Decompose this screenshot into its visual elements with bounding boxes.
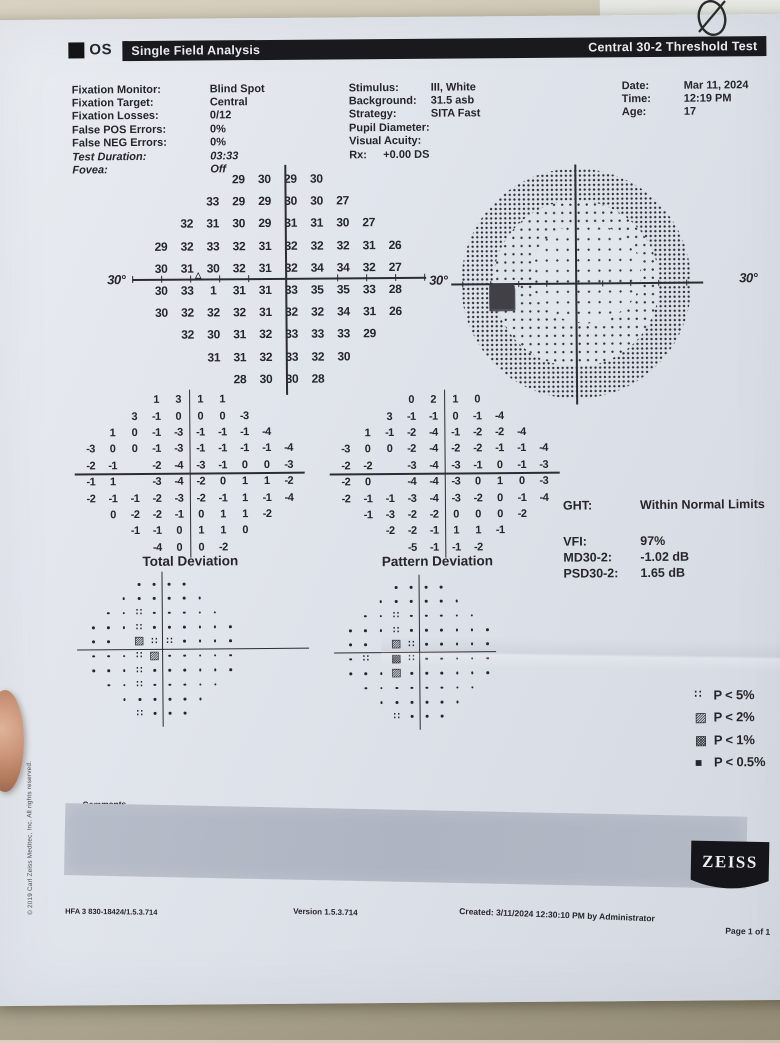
- value-cell: 34: [330, 300, 356, 322]
- value-cell: 31: [356, 300, 382, 322]
- total-deviation-plot: 13113-1000-310-1-3-1-1-1-4-300-1-3-1-1-1…: [79, 391, 300, 559]
- value-cell: -1: [102, 490, 124, 507]
- prob-cell: [208, 706, 223, 721]
- prob-cell: [420, 709, 435, 724]
- value-cell: 33: [174, 279, 200, 301]
- prob-cell: [388, 594, 403, 609]
- prob-cell: [419, 608, 434, 623]
- prob-cell: [193, 706, 208, 721]
- prob-cell: [449, 594, 464, 609]
- value-cell: -1: [233, 440, 255, 457]
- value-cell: -1: [357, 507, 379, 524]
- prob-cell: [464, 608, 479, 623]
- value-cell: 27: [329, 189, 355, 211]
- value-cell: -1: [357, 490, 379, 507]
- param-value: Central: [210, 96, 248, 108]
- value-cell: [382, 211, 408, 233]
- prob-cell: [117, 707, 132, 722]
- threshold-axis-label-right: 30°: [429, 273, 447, 288]
- value-cell: 33: [279, 345, 305, 367]
- value-cell: 33: [278, 279, 304, 301]
- zeiss-logo-text: ZEISS: [690, 852, 770, 873]
- report-content: OS Single Field Analysis Central 30-2 Th…: [0, 0, 780, 1043]
- value-cell: 1: [102, 474, 124, 491]
- legend-row: ▨ P < 2%: [695, 706, 765, 729]
- prob-cell: [223, 663, 238, 678]
- value-cell: -1: [212, 457, 234, 474]
- copyright-text: © 2019 Carl Zeiss Meditec, Inc. All righ…: [26, 761, 34, 915]
- prob-cell: [222, 576, 237, 591]
- value-cell: 32: [174, 213, 200, 235]
- value-cell: 32: [175, 324, 201, 346]
- value-cell: [123, 392, 145, 409]
- prob-cell: ∷: [132, 649, 147, 664]
- value-cell: [278, 522, 300, 539]
- prob-cell: [464, 622, 479, 637]
- value-cell: -2: [80, 491, 102, 508]
- value-cell: -3: [533, 473, 555, 490]
- param-row: Background:31.5 asb: [349, 94, 481, 108]
- value-cell: -3: [146, 474, 168, 491]
- value-cell: -2: [400, 441, 422, 458]
- prob-cell: [192, 605, 207, 620]
- value-cell: 31: [252, 257, 278, 279]
- value-cell: 33: [200, 235, 226, 257]
- value-cell: -2: [357, 458, 379, 475]
- prob-cell: [116, 635, 131, 650]
- md-value: -1.02 dB: [640, 550, 689, 564]
- value-cell: 32: [253, 345, 279, 367]
- value-cell: 31: [226, 279, 252, 301]
- value-cell: [329, 167, 355, 189]
- value-cell: 32: [330, 234, 356, 256]
- value-cell: 0: [489, 506, 511, 523]
- value-cell: -2: [80, 458, 102, 475]
- value-cell: 35: [330, 278, 356, 300]
- value-cell: -1: [255, 440, 277, 457]
- value-cell: [356, 408, 378, 425]
- photo-of-report: { "header": { "eye_label": "OS", "left_t…: [0, 0, 780, 1040]
- value-cell: -3: [445, 490, 467, 507]
- value-cell: -1: [189, 441, 211, 458]
- psd-row: PSD30-2: 1.65 dB: [563, 566, 685, 581]
- prob-cell: [344, 710, 359, 725]
- prob-cell: [207, 605, 222, 620]
- prob-cell: [146, 577, 161, 592]
- prob-cell: [162, 620, 177, 635]
- md-label: MD30-2:: [563, 550, 640, 565]
- param-row: Pupil Diameter:: [349, 120, 481, 134]
- value-cell: -4: [423, 490, 445, 507]
- vfi-value: 97%: [640, 534, 665, 548]
- value-cell: 32: [253, 323, 279, 345]
- param-value: 17: [684, 106, 696, 118]
- value-cell: -2: [278, 473, 300, 490]
- value-cell: [331, 367, 357, 389]
- value-cell: -3: [445, 473, 467, 490]
- prob-cell: [177, 649, 192, 664]
- param-label: Date:: [622, 79, 684, 91]
- prob-cell: [192, 591, 207, 606]
- value-cell: 1: [200, 279, 226, 301]
- prob-cell: [419, 695, 434, 710]
- value-cell: 0: [400, 392, 422, 409]
- param-label: Time:: [622, 93, 684, 105]
- value-cell: -2: [124, 507, 146, 524]
- value-cell: 30: [251, 168, 277, 190]
- prob-cell: [404, 666, 419, 681]
- prob-cell: [434, 680, 449, 695]
- prob-cell: [223, 648, 238, 663]
- prob-cell: [178, 706, 193, 721]
- value-cell: [79, 392, 101, 409]
- stimulus-parameters: Stimulus:III, White Background:31.5 asb …: [349, 80, 481, 161]
- value-cell: 32: [226, 301, 252, 323]
- prob-cell: [146, 606, 161, 621]
- value-cell: 0: [102, 507, 124, 524]
- value-cell: -2: [146, 490, 168, 507]
- value-cell: -1: [379, 490, 401, 507]
- value-cell: 28: [305, 367, 331, 389]
- prob-cell: [434, 580, 449, 595]
- psd-value: 1.65 dB: [640, 566, 685, 580]
- value-cell: [147, 169, 173, 191]
- prob-cell: [102, 692, 117, 707]
- prob-cell: [222, 591, 237, 606]
- prob-cell: [116, 620, 131, 635]
- value-cell: -2: [423, 506, 445, 523]
- value-cell: 1: [189, 391, 211, 408]
- value-cell: 0: [211, 408, 233, 425]
- prob-cell: [464, 579, 479, 594]
- param-row: Time:12:19 PM: [622, 92, 749, 106]
- value-cell: 32: [226, 235, 252, 257]
- value-cell: 34: [304, 256, 330, 278]
- prob-cell: [358, 638, 373, 653]
- pattern-deviation-title: Pattern Deviation: [327, 553, 547, 570]
- value-cell: [233, 391, 255, 408]
- prob-cell: [207, 620, 222, 635]
- value-cell: 34: [330, 256, 356, 278]
- value-cell: -2: [335, 491, 357, 508]
- prob-cell: ∷: [131, 620, 146, 635]
- prob-cell: ∷: [132, 663, 147, 678]
- pattern-deviation-plot: 02103-1-10-1-41-1-2-4-1-2-2-4-300-2-4-2-…: [334, 391, 555, 559]
- value-cell: 0: [489, 489, 511, 506]
- value-cell: -4: [168, 474, 190, 491]
- prob-cell: [162, 692, 177, 707]
- prob-cell: [359, 710, 374, 725]
- value-cell: -1: [423, 523, 445, 540]
- value-cell: 1: [445, 523, 467, 540]
- value-cell: 32: [304, 301, 330, 323]
- prob-cell: [86, 649, 101, 664]
- value-cell: -1: [80, 474, 102, 491]
- value-cell: -1: [146, 523, 168, 540]
- value-cell: 0: [234, 457, 256, 474]
- value-cell: -2: [190, 490, 212, 507]
- value-cell: 0: [189, 408, 211, 425]
- prob-cell: [86, 606, 101, 621]
- grayscale-light-stipple: [531, 223, 642, 324]
- value-cell: 30: [330, 212, 356, 234]
- value-cell: [379, 457, 401, 474]
- prob-cell: [161, 577, 176, 592]
- value-cell: -4: [277, 440, 299, 457]
- handwritten-circle-slash-mark: [688, 0, 736, 42]
- prob-cell: ∷: [358, 652, 373, 667]
- value-cell: -1: [510, 440, 532, 457]
- value-cell: -1: [124, 490, 146, 507]
- prob-cell: [403, 594, 418, 609]
- value-cell: 30: [253, 368, 279, 390]
- vfi-label: VFI:: [563, 534, 640, 549]
- value-cell: -3: [79, 441, 101, 458]
- prob-cell: [374, 710, 389, 725]
- value-cell: -3: [379, 507, 401, 524]
- value-cell: -4: [422, 424, 444, 441]
- vfi-row: VFI: 97%: [563, 534, 665, 549]
- prob-cell: [162, 677, 177, 692]
- value-cell: -4: [255, 424, 277, 441]
- prob-cell: [162, 591, 177, 606]
- value-cell: [334, 392, 356, 409]
- param-label: Age:: [622, 106, 684, 118]
- prob-cell: [358, 609, 373, 624]
- param-label: Test Duration:: [72, 150, 210, 163]
- prob-cell: [374, 695, 389, 710]
- param-value: 12:19 PM: [684, 92, 732, 104]
- value-cell: -2: [335, 458, 357, 475]
- prob-cell: [117, 678, 132, 693]
- value-cell: -2: [401, 506, 423, 523]
- prob-cell: [101, 592, 116, 607]
- prob-cell: [101, 606, 116, 621]
- value-cell: [510, 391, 532, 408]
- value-cell: [510, 407, 532, 424]
- value-cell: 1: [145, 392, 167, 409]
- value-cell: 26: [382, 300, 408, 322]
- prob-cell: [177, 663, 192, 678]
- blind-spot-marker-icon: △: [195, 270, 201, 279]
- prob-cell: [207, 576, 222, 591]
- prob-cell: [177, 577, 192, 592]
- param-label: Visual Acuity:: [349, 135, 431, 148]
- value-cell: [277, 424, 299, 441]
- eye-label: OS: [89, 41, 112, 58]
- value-cell: 0: [234, 522, 256, 539]
- prob-cell: [177, 677, 192, 692]
- value-cell: 32: [304, 234, 330, 256]
- p05-symbol-icon: ■: [695, 756, 714, 768]
- value-cell: 1: [489, 473, 511, 490]
- value-cell: 30: [303, 167, 329, 189]
- value-cell: -1: [233, 424, 255, 441]
- value-cell: 32: [356, 256, 382, 278]
- legend-label: P < 2%: [714, 709, 755, 724]
- ght-row: GHT: Within Normal Limits: [563, 497, 765, 513]
- value-cell: -1: [400, 408, 422, 425]
- value-cell: [383, 367, 409, 389]
- value-cell: [278, 505, 300, 522]
- value-cell: [255, 391, 277, 408]
- value-cell: 0: [101, 441, 123, 458]
- prob-cell: [223, 691, 238, 706]
- value-cell: 29: [225, 168, 251, 190]
- prob-cell: [193, 663, 208, 678]
- prob-cell: [101, 577, 116, 592]
- prob-cell: ∷: [162, 634, 177, 649]
- value-cell: -4: [423, 457, 445, 474]
- prob-cell: [388, 580, 403, 595]
- prob-cell: [146, 591, 161, 606]
- value-cell: -2: [256, 506, 278, 523]
- value-cell: 1: [101, 425, 123, 442]
- value-cell: [378, 392, 400, 409]
- prob-cell: [434, 623, 449, 638]
- value-cell: -2: [444, 441, 466, 458]
- value-cell: 0: [123, 441, 145, 458]
- value-cell: -1: [102, 458, 124, 475]
- value-cell: 1: [356, 425, 378, 442]
- prob-cell: [208, 648, 223, 663]
- prob-cell: [419, 594, 434, 609]
- value-cell: -2: [511, 506, 533, 523]
- value-cell: [255, 407, 277, 424]
- value-cell: [80, 507, 102, 524]
- prob-cell: [479, 579, 494, 594]
- prob-cell: [373, 580, 388, 595]
- total-deviation-probability-map: ∷∷▨∷∷∷▨∷∷∷: [86, 576, 239, 723]
- prob-cell: [465, 680, 480, 695]
- value-cell: 29: [148, 235, 174, 257]
- prob-cell: [147, 706, 162, 721]
- prob-cell: [480, 709, 495, 724]
- prob-cell: [374, 681, 389, 696]
- value-cell: [124, 457, 146, 474]
- p5-symbol-icon: ∷: [694, 689, 713, 700]
- value-cell: [201, 368, 227, 390]
- prob-cell: [450, 695, 465, 710]
- value-cell: [79, 409, 101, 426]
- value-cell: -2: [379, 523, 401, 540]
- value-cell: -4: [278, 489, 300, 506]
- value-cell: -3: [334, 441, 356, 458]
- value-cell: -1: [212, 490, 234, 507]
- value-cell: 31: [356, 234, 382, 256]
- value-cell: 32: [174, 302, 200, 324]
- value-cell: [80, 523, 102, 540]
- value-cell: [79, 425, 101, 442]
- value-cell: -1: [444, 424, 466, 441]
- value-cell: -1: [488, 440, 510, 457]
- prob-cell: [147, 620, 162, 635]
- value-cell: -2: [467, 490, 489, 507]
- prob-cell: [434, 594, 449, 609]
- value-cell: [383, 322, 409, 344]
- prob-cell: [465, 666, 480, 681]
- value-cell: -1: [145, 441, 167, 458]
- prob-cell: ∷: [131, 606, 146, 621]
- legend-row: ∷ P < 5%: [694, 683, 764, 706]
- value-cell: [532, 407, 554, 424]
- value-cell: -4: [401, 474, 423, 491]
- value-cell: -3: [168, 490, 190, 507]
- paper-crease: [381, 636, 780, 672]
- param-label: Rx:: [349, 149, 383, 161]
- prob-cell: [223, 634, 238, 649]
- value-cell: [379, 474, 401, 491]
- prob-cell: [373, 594, 388, 609]
- prob-cell: ∷: [132, 678, 147, 693]
- prob-cell: [480, 680, 495, 695]
- prob-cell: [450, 666, 465, 681]
- value-cell: -4: [488, 407, 510, 424]
- prob-cell: [435, 709, 450, 724]
- value-cell: 29: [251, 190, 277, 212]
- value-cell: 1: [211, 391, 233, 408]
- value-cell: 0: [511, 473, 533, 490]
- report-paper: OS Single Field Analysis Central 30-2 Th…: [0, 14, 780, 1006]
- prob-cell: [404, 695, 419, 710]
- prob-cell: [449, 579, 464, 594]
- prob-cell: [162, 706, 177, 721]
- param-label: Fixation Target:: [72, 96, 210, 109]
- value-cell: -4: [422, 441, 444, 458]
- prob-cell: [465, 709, 480, 724]
- value-cell: 32: [278, 234, 304, 256]
- value-cell: 0: [190, 506, 212, 523]
- value-cell: -2: [401, 523, 423, 540]
- value-cell: -1: [211, 440, 233, 457]
- param-row: Age:17: [622, 105, 749, 119]
- prob-cell: [343, 609, 358, 624]
- created-timestamp-text: Created: 3/11/2024 12:30:10 PM by Admini…: [459, 906, 655, 923]
- prob-cell: [192, 620, 207, 635]
- prob-cell: [86, 678, 101, 693]
- value-cell: [101, 408, 123, 425]
- prob-cell: [208, 663, 223, 678]
- psd-label: PSD30-2:: [563, 566, 640, 581]
- param-row: Visual Acuity:: [349, 134, 481, 148]
- prob-cell: [101, 620, 116, 635]
- value-cell: 0: [467, 506, 489, 523]
- value-cell: 33: [305, 323, 331, 345]
- value-cell: 27: [356, 211, 382, 233]
- prob-cell: [192, 576, 207, 591]
- value-cell: -3: [167, 441, 189, 458]
- value-cell: 33: [279, 323, 305, 345]
- param-value: 0/12: [210, 110, 232, 122]
- prob-cell: [223, 619, 238, 634]
- value-cell: -4: [423, 474, 445, 491]
- value-cell: 0: [168, 523, 190, 540]
- value-cell: 31: [252, 279, 278, 301]
- value-cell: -2: [335, 474, 357, 491]
- param-value: III, White: [431, 81, 476, 93]
- ght-label: GHT:: [563, 498, 640, 513]
- prob-cell: [101, 635, 116, 650]
- value-cell: 32: [200, 301, 226, 323]
- value-cell: -1: [489, 522, 511, 539]
- value-cell: 32: [174, 235, 200, 257]
- prob-cell: [343, 695, 358, 710]
- value-cell: 0: [256, 456, 278, 473]
- threshold-axis-label-left: 30°: [107, 272, 125, 287]
- prob-cell: [373, 609, 388, 624]
- value-cell: [381, 167, 407, 189]
- value-cell: -3: [401, 490, 423, 507]
